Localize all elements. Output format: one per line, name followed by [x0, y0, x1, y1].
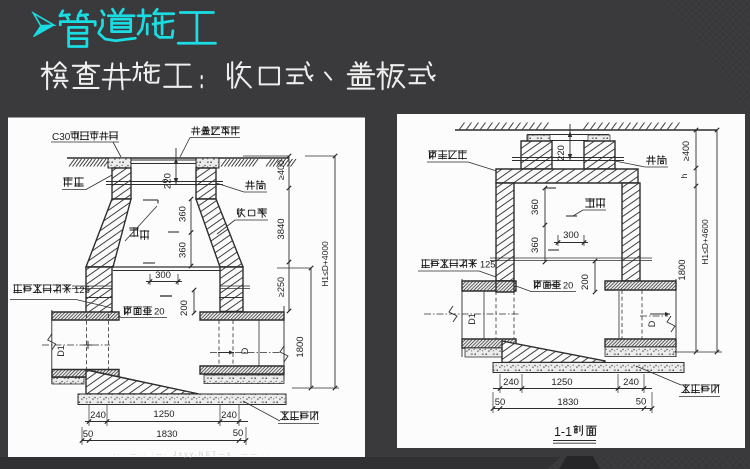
svg-text:C30: C30: [52, 132, 71, 143]
svg-text:50: 50: [233, 428, 244, 439]
svg-text:50: 50: [636, 397, 647, 408]
svg-text:50: 50: [495, 397, 506, 408]
svg-text:220: 220: [163, 173, 174, 189]
svg-text:360: 360: [178, 242, 189, 258]
svg-text:H1≤D+4000: H1≤D+4000: [320, 241, 330, 287]
svg-text:D: D: [647, 320, 657, 327]
svg-text:1250: 1250: [551, 377, 572, 388]
svg-text:D1: D1: [467, 313, 477, 325]
svg-text:3840: 3840: [276, 218, 287, 239]
svg-text:125: 125: [480, 260, 495, 270]
svg-text:1800: 1800: [677, 259, 688, 280]
svg-text:1250: 1250: [153, 409, 174, 420]
svg-text:240: 240: [221, 410, 237, 421]
svg-text:1800: 1800: [295, 336, 306, 357]
svg-text:300: 300: [155, 270, 171, 281]
svg-text:240: 240: [503, 377, 519, 388]
svg-text:1830: 1830: [557, 397, 578, 408]
svg-text:≥400: ≥400: [681, 141, 691, 161]
svg-text:360: 360: [178, 206, 189, 222]
svg-text:20: 20: [563, 281, 573, 291]
svg-text:50: 50: [83, 429, 94, 440]
svg-text:200: 200: [580, 274, 591, 290]
svg-text:D1: D1: [56, 345, 66, 357]
svg-text:300: 300: [563, 230, 579, 241]
svg-text:20: 20: [154, 307, 165, 318]
svg-text:≥250: ≥250: [276, 277, 286, 297]
svg-text:≥400: ≥400: [276, 160, 286, 180]
svg-text:·-·· —·· ·—· J±yy.NET—± ·—— ··: ·-·· —·· ·—· J±yy.NET—± ·—— ··: [109, 451, 272, 458]
svg-text:125: 125: [74, 285, 90, 296]
svg-text:h: h: [679, 173, 689, 178]
svg-text:360: 360: [530, 237, 541, 253]
svg-text:220: 220: [556, 145, 567, 161]
svg-text:360: 360: [530, 199, 541, 215]
svg-text:1-1: 1-1: [554, 425, 572, 439]
svg-text:240: 240: [623, 377, 639, 388]
svg-text:200: 200: [179, 300, 190, 316]
svg-text:240: 240: [90, 410, 106, 421]
svg-text:H1≤D+4600: H1≤D+4600: [700, 219, 710, 265]
svg-text:D: D: [240, 347, 250, 354]
svg-text:1830: 1830: [156, 429, 177, 440]
